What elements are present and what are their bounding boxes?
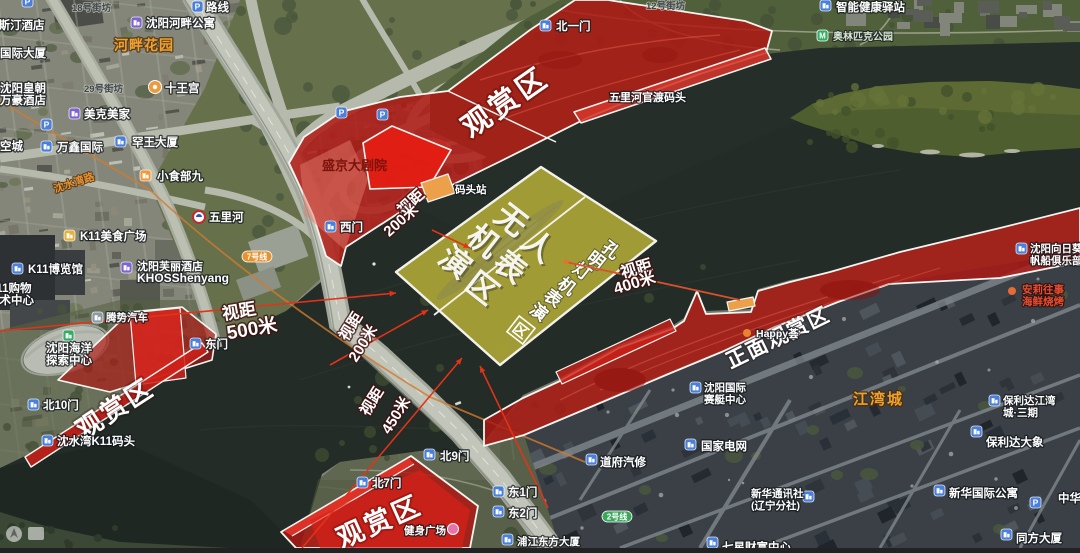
svg-text:小食部九: 小食部九 <box>156 169 203 183</box>
svg-text:探索中心: 探索中心 <box>46 353 92 367</box>
svg-text:智能健康驿站: 智能健康驿站 <box>836 0 905 14</box>
svg-text:健身广场: 健身广场 <box>404 524 446 537</box>
svg-text:盛京大剧院: 盛京大剧院 <box>322 158 387 173</box>
svg-text:北7门: 北7门 <box>372 476 401 490</box>
svg-text:P: P <box>25 0 31 7</box>
svg-text:十王宫: 十王宫 <box>165 81 200 95</box>
svg-text:K11购物: K11购物 <box>0 281 32 295</box>
svg-text:新华通讯社: 新华通讯社 <box>751 487 804 500</box>
svg-text:罕王大厦: 罕王大厦 <box>132 135 178 149</box>
svg-text:东门: 东门 <box>205 337 228 351</box>
svg-text:P: P <box>380 110 386 120</box>
svg-text:沈阳皇朝: 沈阳皇朝 <box>0 81 46 95</box>
svg-text:沈阳河畔公寓: 沈阳河畔公寓 <box>146 16 215 30</box>
svg-text:帆船俱乐部: 帆船俱乐部 <box>1030 254 1080 267</box>
svg-text:沈水湾K11码头: 沈水湾K11码头 <box>57 434 135 448</box>
svg-text:五里河: 五里河 <box>209 210 244 224</box>
svg-text:中华路: 中华路 <box>1058 491 1080 505</box>
svg-text:P: P <box>195 2 201 12</box>
svg-text:保利达大象: 保利达大象 <box>985 435 1044 449</box>
svg-text:奥林匹克公园: 奥林匹克公园 <box>833 30 893 43</box>
svg-text:河畔花园: 河畔花园 <box>114 37 174 53</box>
svg-text:2号线: 2号线 <box>607 512 627 522</box>
svg-text:国际大厦: 国际大厦 <box>0 46 46 60</box>
svg-text:29号街坊: 29号街坊 <box>84 83 124 95</box>
svg-text:(辽宁分社): (辽宁分社) <box>751 499 800 512</box>
svg-text:K11美食广场: K11美食广场 <box>80 229 147 243</box>
svg-text:K11博览馆: K11博览馆 <box>28 262 83 276</box>
svg-text:海鲜烧烤: 海鲜烧烤 <box>1022 295 1064 308</box>
svg-text:东2门: 东2门 <box>508 506 537 520</box>
svg-text:保利达江湾: 保利达江湾 <box>1002 394 1056 407</box>
svg-text:五里河官渡码头: 五里河官渡码头 <box>609 90 686 104</box>
svg-text:城·三期: 城·三期 <box>1003 406 1038 419</box>
svg-text:北9门: 北9门 <box>440 449 469 463</box>
svg-text:新华国际公寓: 新华国际公寓 <box>949 486 1018 500</box>
svg-text:东1门: 东1门 <box>508 485 537 499</box>
svg-text:空城: 空城 <box>0 139 23 153</box>
svg-text:沈阳国际: 沈阳国际 <box>704 381 746 394</box>
svg-text:美克美家: 美克美家 <box>84 107 130 121</box>
svg-text:万豪酒店: 万豪酒店 <box>0 93 46 107</box>
svg-text:12号街坊: 12号街坊 <box>646 0 686 12</box>
svg-text:江湾城: 江湾城 <box>853 390 904 408</box>
svg-text:KHOSShenyang: KHOSShenyang <box>137 271 229 285</box>
svg-text:P: P <box>44 120 50 130</box>
svg-text:北一门: 北一门 <box>556 19 591 33</box>
svg-text:国家电网: 国家电网 <box>701 439 747 453</box>
svg-text:浦江东方大厦: 浦江东方大厦 <box>517 535 580 548</box>
svg-text:沈阳海洋: 沈阳海洋 <box>46 341 92 355</box>
svg-text:18号街坊: 18号街坊 <box>72 2 112 14</box>
svg-text:腾势汽车: 腾势汽车 <box>105 311 148 324</box>
svg-text:安莉往事: 安莉往事 <box>1022 283 1064 296</box>
svg-text:艺术中心: 艺术中心 <box>0 293 34 307</box>
svg-text:码头站: 码头站 <box>455 183 487 196</box>
svg-text:沈阳向日葵: 沈阳向日葵 <box>1030 242 1080 255</box>
svg-text:威斯汀酒店: 威斯汀酒店 <box>0 18 45 32</box>
svg-text:道府汽修: 道府汽修 <box>600 455 646 469</box>
svg-text:赛艇中心: 赛艇中心 <box>703 393 746 406</box>
svg-text:Happy荟: Happy荟 <box>756 327 799 340</box>
svg-text:同方大厦: 同方大厦 <box>1016 531 1062 545</box>
svg-text:万鑫国际: 万鑫国际 <box>56 140 103 154</box>
svg-text:北10门: 北10门 <box>43 398 79 412</box>
svg-text:路线: 路线 <box>206 0 229 14</box>
svg-text:7号线: 7号线 <box>247 252 267 262</box>
svg-text:西门: 西门 <box>340 220 363 234</box>
svg-text:七星财富中心: 七星财富中心 <box>722 540 791 548</box>
svg-text:M: M <box>819 32 826 41</box>
svg-text:P: P <box>339 108 345 118</box>
svg-text:P: P <box>1033 498 1039 508</box>
